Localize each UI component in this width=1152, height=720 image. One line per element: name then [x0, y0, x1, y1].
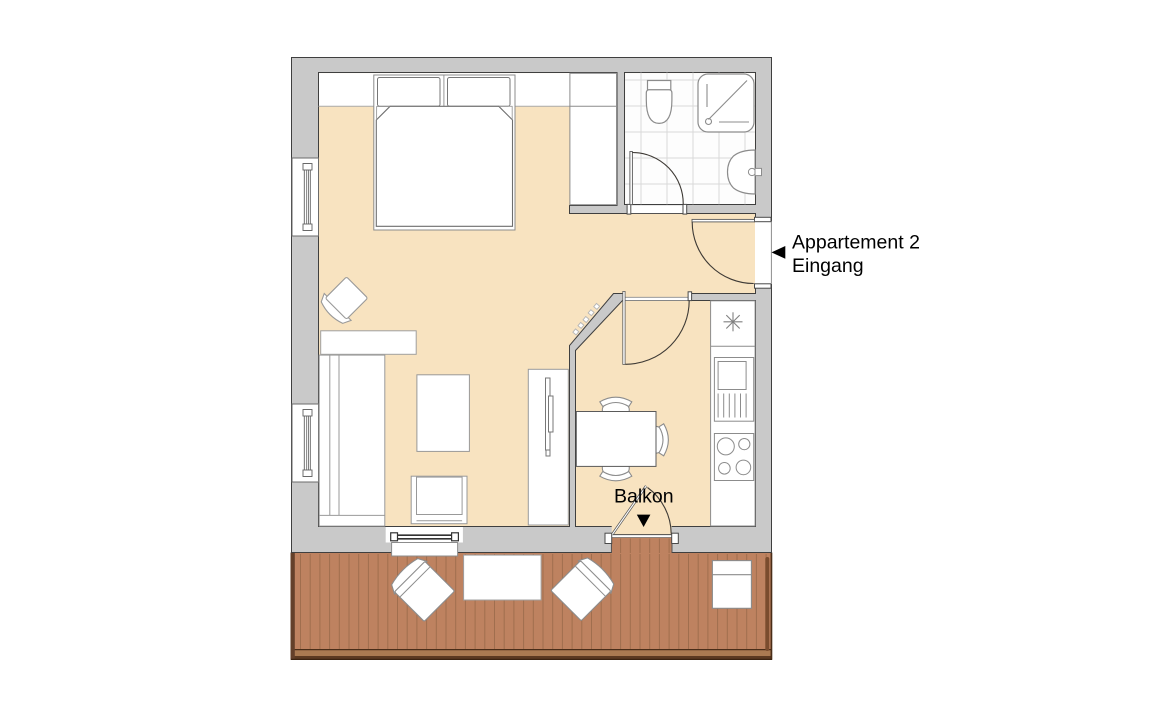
svg-text:Balkon: Balkon — [614, 485, 674, 507]
svg-text:Appartement 2: Appartement 2 — [792, 232, 920, 254]
svg-text:Eingang: Eingang — [792, 255, 864, 277]
